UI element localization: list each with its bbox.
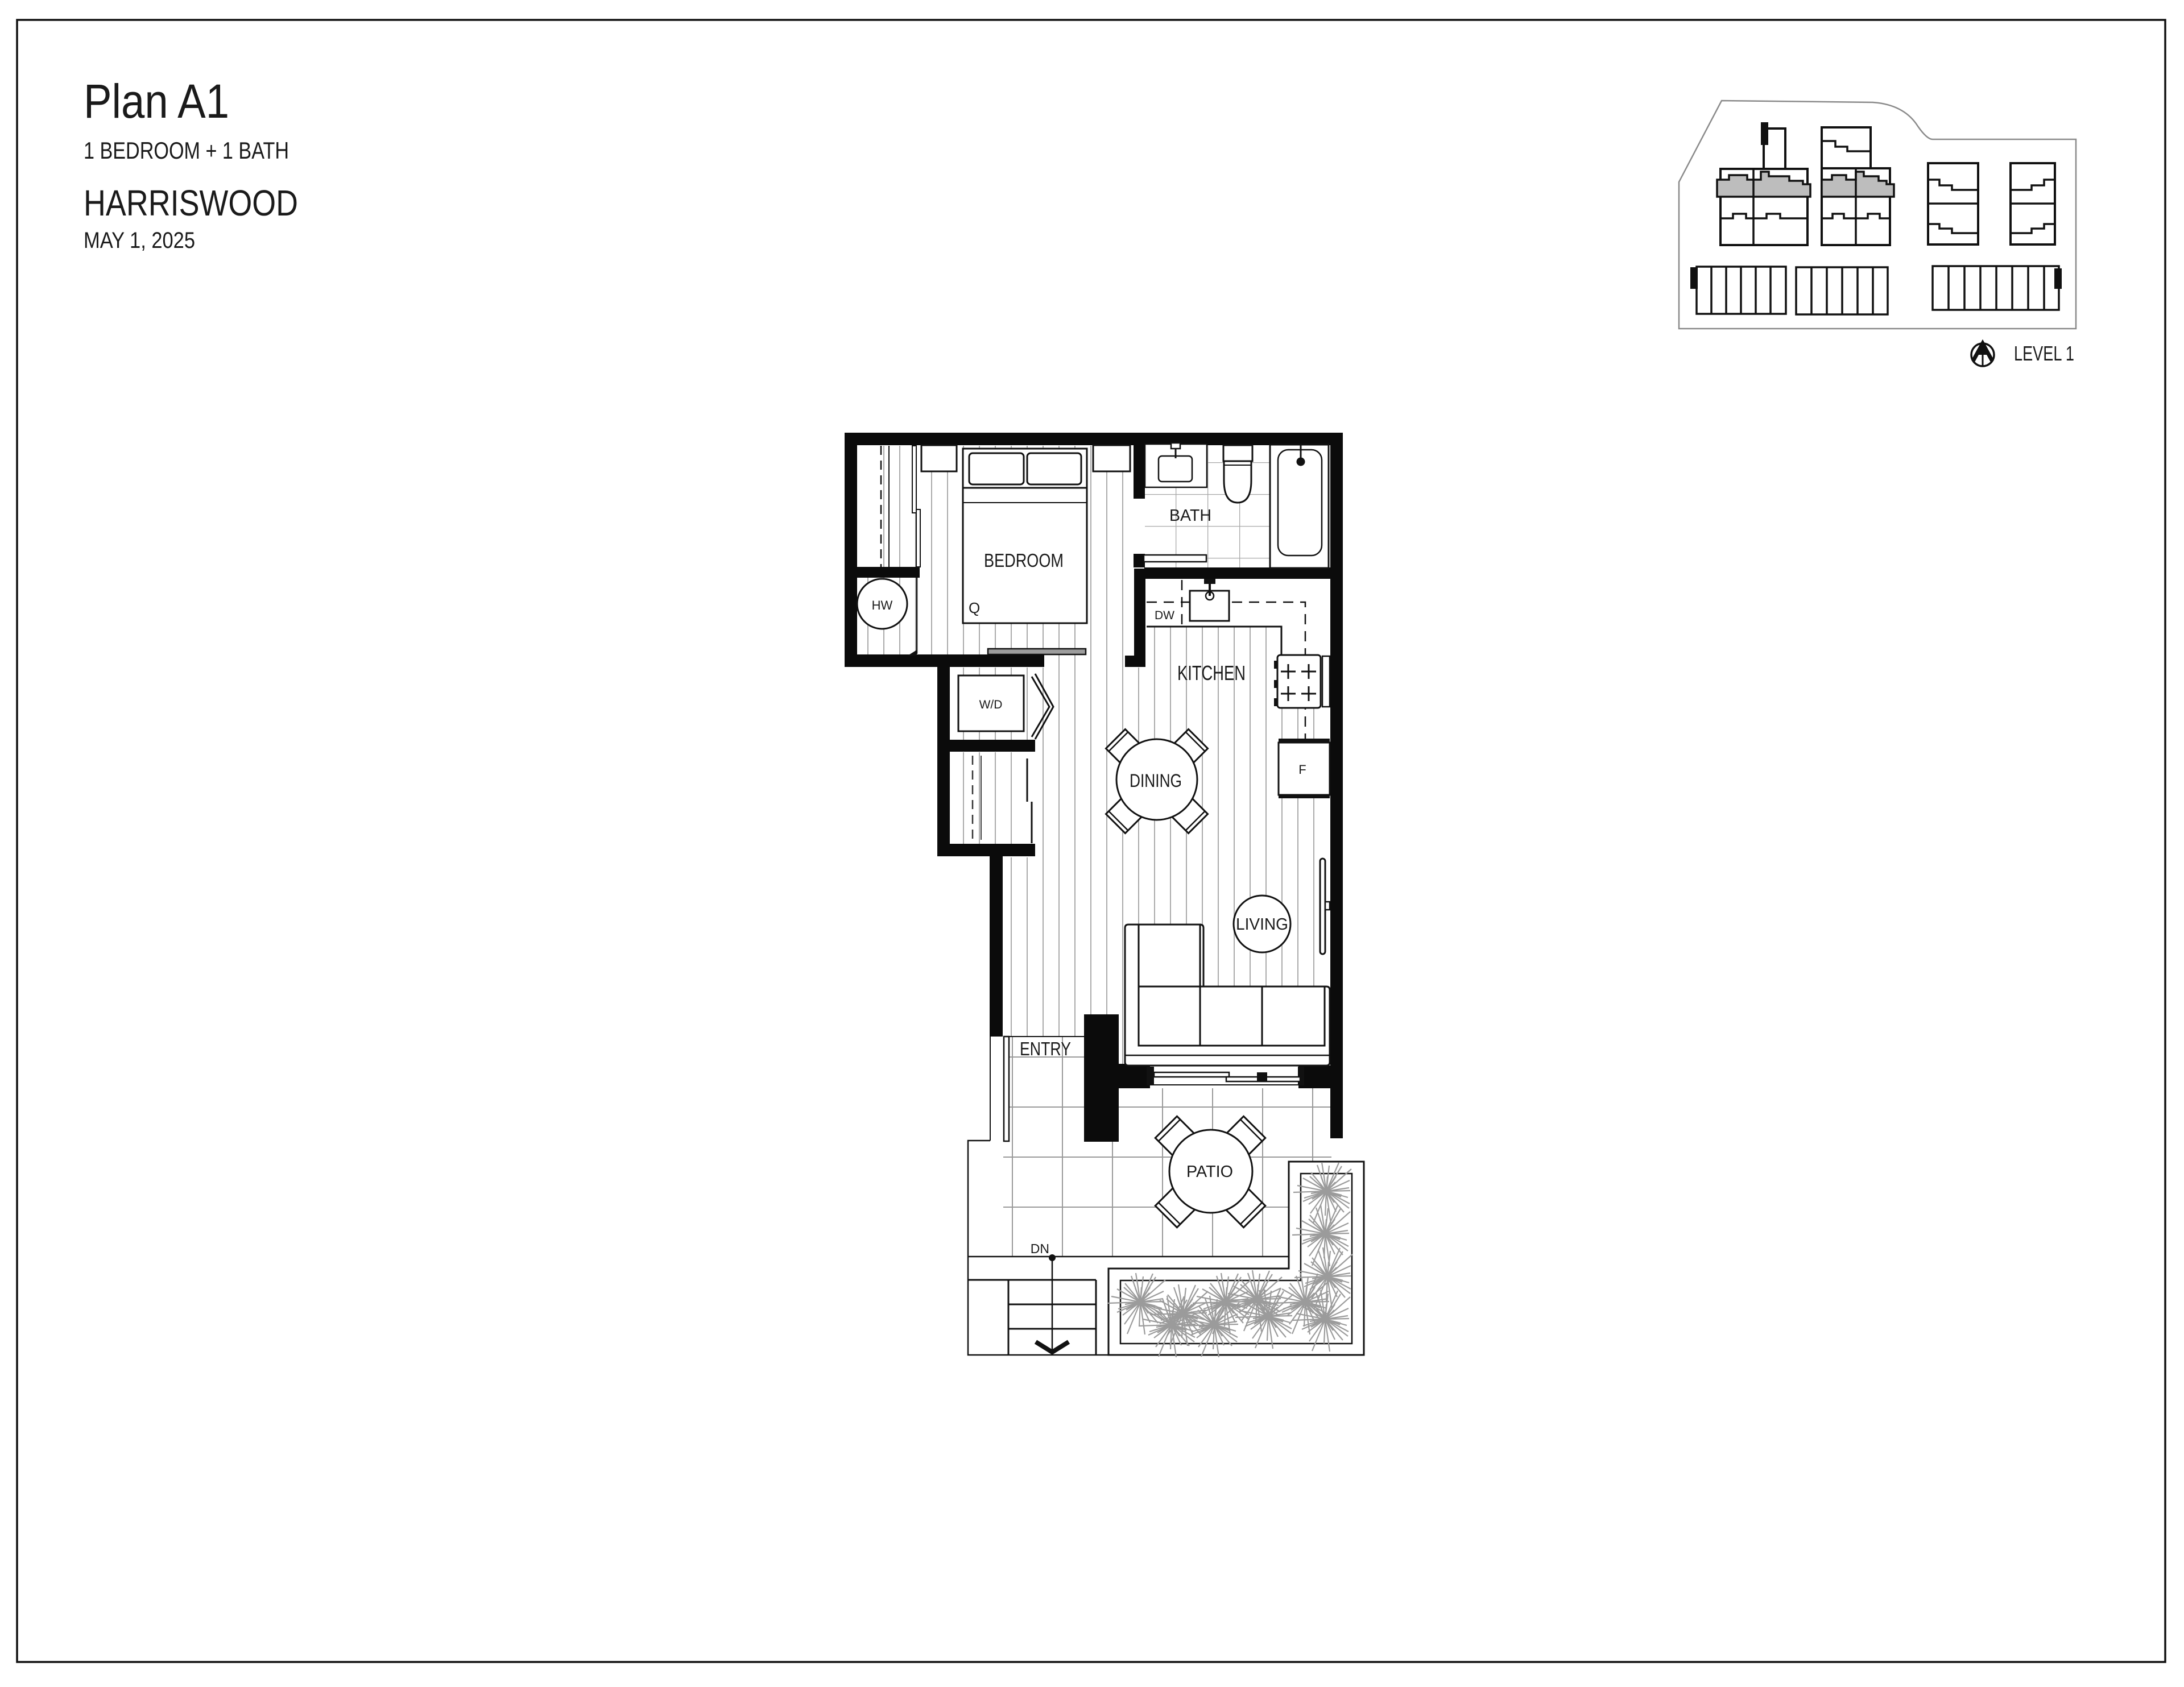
svg-text:MAY 1, 2025: MAY 1, 2025: [84, 228, 195, 253]
svg-text:HW: HW: [872, 598, 893, 612]
svg-text:F: F: [1298, 762, 1306, 777]
svg-text:DW: DW: [1155, 609, 1174, 622]
svg-text:HARRISWOOD: HARRISWOOD: [84, 183, 298, 223]
svg-text:LEVEL 1: LEVEL 1: [2014, 342, 2074, 365]
svg-text:1 BEDROOM + 1 BATH: 1 BEDROOM + 1 BATH: [84, 137, 289, 164]
svg-text:PATIO: PATIO: [1186, 1163, 1233, 1181]
svg-text:Q: Q: [969, 599, 980, 616]
svg-text:BEDROOM: BEDROOM: [984, 550, 1064, 571]
svg-text:LIVING: LIVING: [1236, 915, 1288, 934]
svg-text:DINING: DINING: [1130, 770, 1182, 791]
svg-text:ENTRY: ENTRY: [1020, 1038, 1071, 1059]
svg-text:BATH: BATH: [1169, 507, 1211, 525]
svg-text:KITCHEN: KITCHEN: [1177, 661, 1246, 685]
svg-text:W/D: W/D: [979, 698, 1003, 711]
svg-text:DN: DN: [1031, 1241, 1049, 1256]
svg-text:Plan A1: Plan A1: [84, 74, 229, 128]
